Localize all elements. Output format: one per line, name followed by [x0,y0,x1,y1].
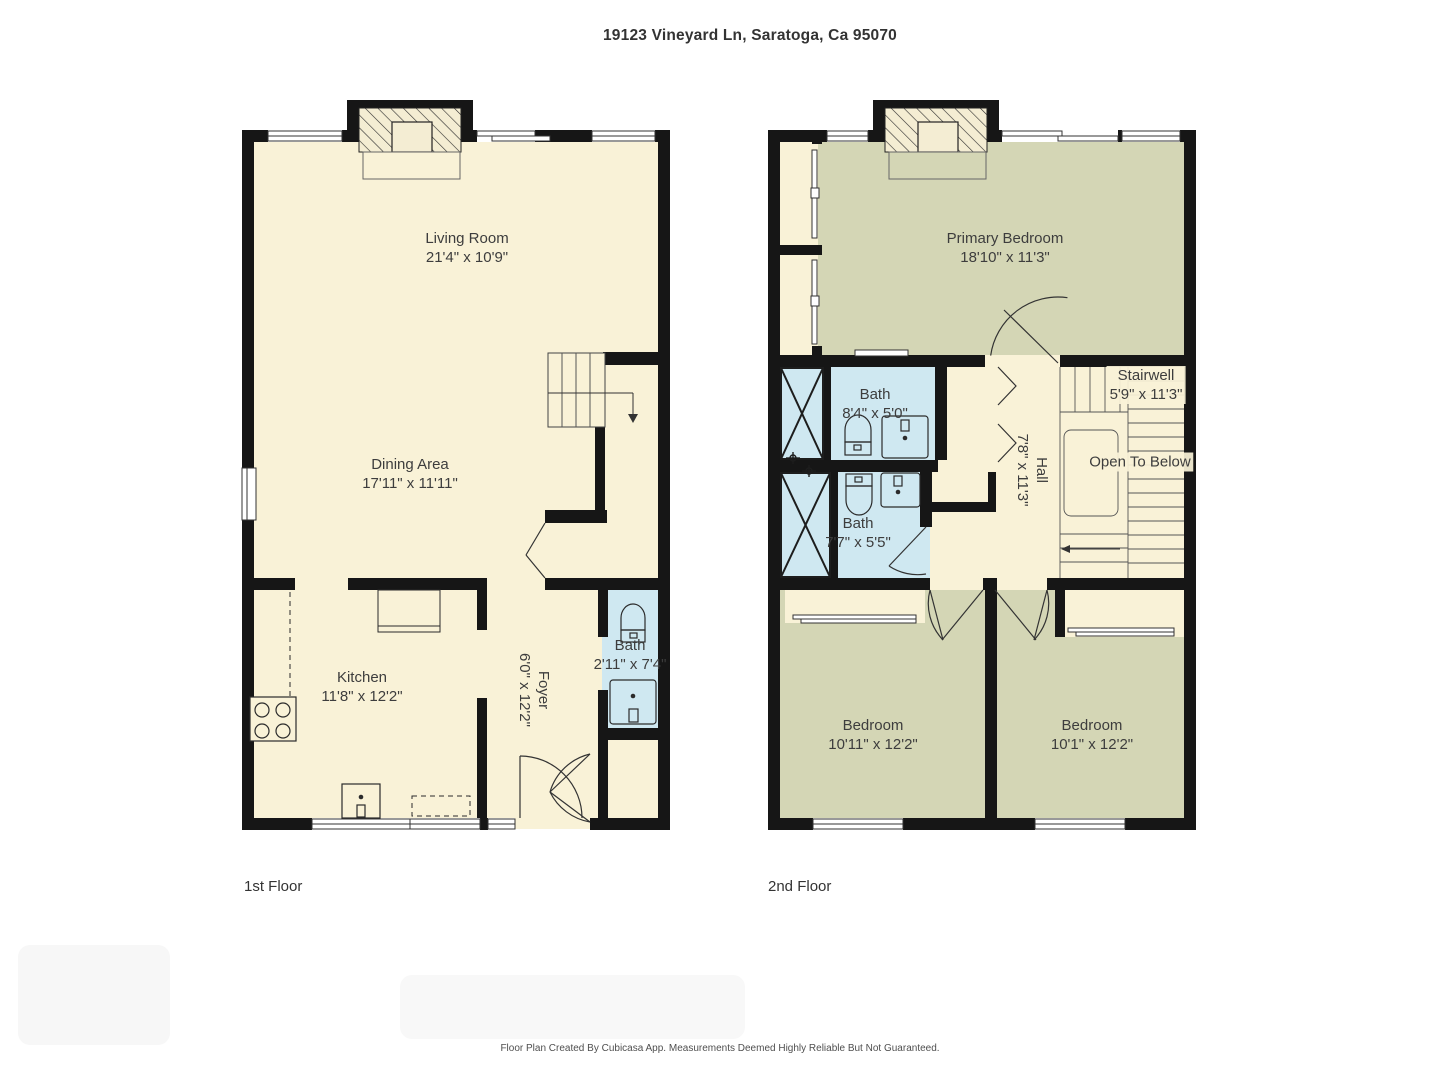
footer-disclaimer: Floor Plan Created By Cubicasa App. Meas… [0,1043,1440,1054]
floor-plan-first: Living Room 21'4" x 10'9" Dining Area 17… [242,100,670,830]
room-label-living: Living Room 21'4" x 10'9" [425,229,508,267]
room-label-bedroom-left: Bedroom 10'11" x 12'2" [828,716,918,754]
room-label-bath-upper: Bath 8'4" x 5'0" [842,385,908,423]
room-label-bath-lower: Bath 7'7" x 5'5" [825,514,891,552]
watermark-blob [18,945,170,1045]
room-label-stairwell: Stairwell 5'9" x 11'3" [1107,366,1186,404]
floor-plan-second: Primary Bedroom 18'10" x 11'3" Bath 8'4"… [768,100,1196,830]
watermark-blob [400,975,745,1039]
room-label-kitchen: Kitchen 11'8" x 12'2" [321,668,402,706]
room-label-primary-bedroom: Primary Bedroom 18'10" x 11'3" [947,229,1064,267]
room-label-bath1: Bath 2'11" x 7'4" [594,636,667,674]
room-label-foyer: Foyer 6'0" x 12'2" [515,653,553,727]
page-title: 19123 Vineyard Ln, Saratoga, Ca 95070 [0,27,1440,45]
fireplace-icon [873,100,999,179]
room-label-open-to-below: Open To Below [1086,453,1193,472]
kitchen-sink-icon [342,784,380,818]
fireplace-icon [347,100,473,179]
room-label-dining: Dining Area 17'11" x 11'11" [362,455,458,493]
stove-icon [250,697,296,741]
room-label-hall: Hall 7'8" x 11'3" [1013,434,1051,507]
floor-caption-first: 1st Floor [244,878,302,895]
floor-caption-second: 2nd Floor [768,878,831,895]
room-label-bedroom-right: Bedroom 10'1" x 12'2" [1051,716,1133,754]
